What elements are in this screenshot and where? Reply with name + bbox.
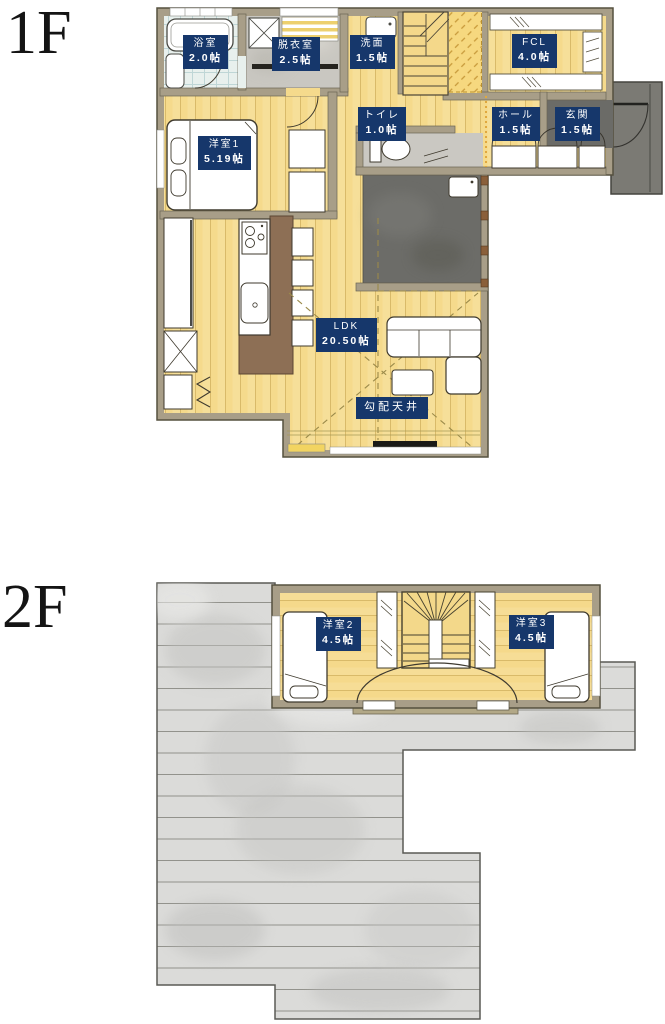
room-name: 洋室3	[515, 617, 548, 631]
pillow	[171, 170, 186, 196]
room-label-washroom: 洗面 1.5帖	[350, 35, 395, 69]
room-label-fcl: FCL 4.0帖	[512, 34, 557, 68]
bath-counter	[166, 54, 184, 88]
bedroom3-window	[592, 616, 600, 696]
ldk-sliding-window	[373, 441, 437, 447]
room-size: 2.0帖	[189, 51, 222, 66]
room-label-entrance: 玄関 1.5帖	[555, 107, 600, 141]
floor-title-1f: 1F	[6, 2, 71, 64]
room-name: FCL	[518, 36, 551, 50]
room-size: 5.19帖	[204, 152, 245, 167]
pillow	[171, 138, 186, 164]
room-name: LDK	[322, 320, 371, 334]
room-name: 浴室	[189, 37, 222, 51]
bedroom1-window	[157, 130, 164, 188]
bedroom1-door-opening	[286, 88, 320, 96]
pillow	[290, 686, 318, 698]
bedroom2-window	[272, 616, 280, 696]
room-label-bedroom2: 洋室2 4.5帖	[316, 617, 361, 651]
room-size: 4.0帖	[518, 50, 551, 65]
room-label-bathroom: 浴室 2.0帖	[183, 35, 228, 69]
staircase-2f	[402, 592, 470, 668]
room-label-toilet: トイレ 1.0帖	[358, 107, 406, 141]
room-label-hall: ホール 1.5帖	[492, 107, 540, 141]
bathroom-door-opening	[238, 56, 246, 88]
floor-title-2f: 2F	[2, 576, 67, 638]
room-name: ホール	[498, 109, 534, 123]
room-size: 20.50帖	[322, 334, 371, 349]
room-label-dressing: 脱衣室 2.5帖	[272, 37, 320, 71]
room-size: 1.5帖	[498, 123, 534, 138]
floor2-plan	[150, 580, 635, 1019]
room-size: 1.0帖	[364, 123, 400, 138]
room-size: 4.5帖	[322, 633, 355, 648]
entrance-porch	[611, 82, 662, 194]
room-size: 1.5帖	[561, 123, 594, 138]
stove	[242, 222, 267, 254]
room-name: 脱衣室	[278, 39, 314, 53]
coffee-table	[392, 370, 433, 395]
bedroom3-door-sill	[477, 701, 509, 710]
floor-plan-page: 1F 2F 浴室 2.0帖 脱衣室 2.5帖 洗面 1.5帖 FCL 4.0帖 …	[0, 0, 665, 1024]
floor-plan-drawing	[0, 0, 665, 1024]
window-shaft	[164, 331, 197, 372]
kitchen-sink	[241, 283, 268, 323]
room-label-bedroom3: 洋室3 4.5帖	[509, 615, 554, 649]
ldk-small-window	[288, 444, 325, 452]
staircase-1f	[403, 12, 449, 95]
stair-void-hatch	[449, 12, 482, 93]
floor1-plan	[157, 8, 662, 457]
room-label-bedroom1: 洋室1 5.19帖	[198, 136, 251, 170]
ldk-window-sill	[330, 447, 481, 454]
bedroom2-door-sill	[363, 701, 395, 710]
room-name: 洋室2	[322, 619, 355, 633]
room-name: トイレ	[364, 109, 400, 123]
room-name: 玄関	[561, 109, 594, 123]
pillow	[552, 686, 580, 698]
hall-closets	[492, 146, 605, 168]
annotation-text: 勾配天井	[362, 399, 422, 416]
room-name: 洋室1	[204, 138, 245, 152]
room-size: 1.5帖	[356, 51, 389, 66]
room-size: 4.5帖	[515, 631, 548, 646]
dressing-window	[280, 8, 338, 16]
room-name: 洗面	[356, 37, 389, 51]
entrance-door-opening	[606, 100, 613, 148]
annotation-sloped-ceiling: 勾配天井	[356, 397, 428, 419]
terrace-sink	[449, 177, 478, 197]
bathroom-window	[170, 8, 232, 16]
room-label-ldk: LDK 20.50帖	[316, 318, 377, 352]
room-size: 2.5帖	[278, 53, 314, 68]
